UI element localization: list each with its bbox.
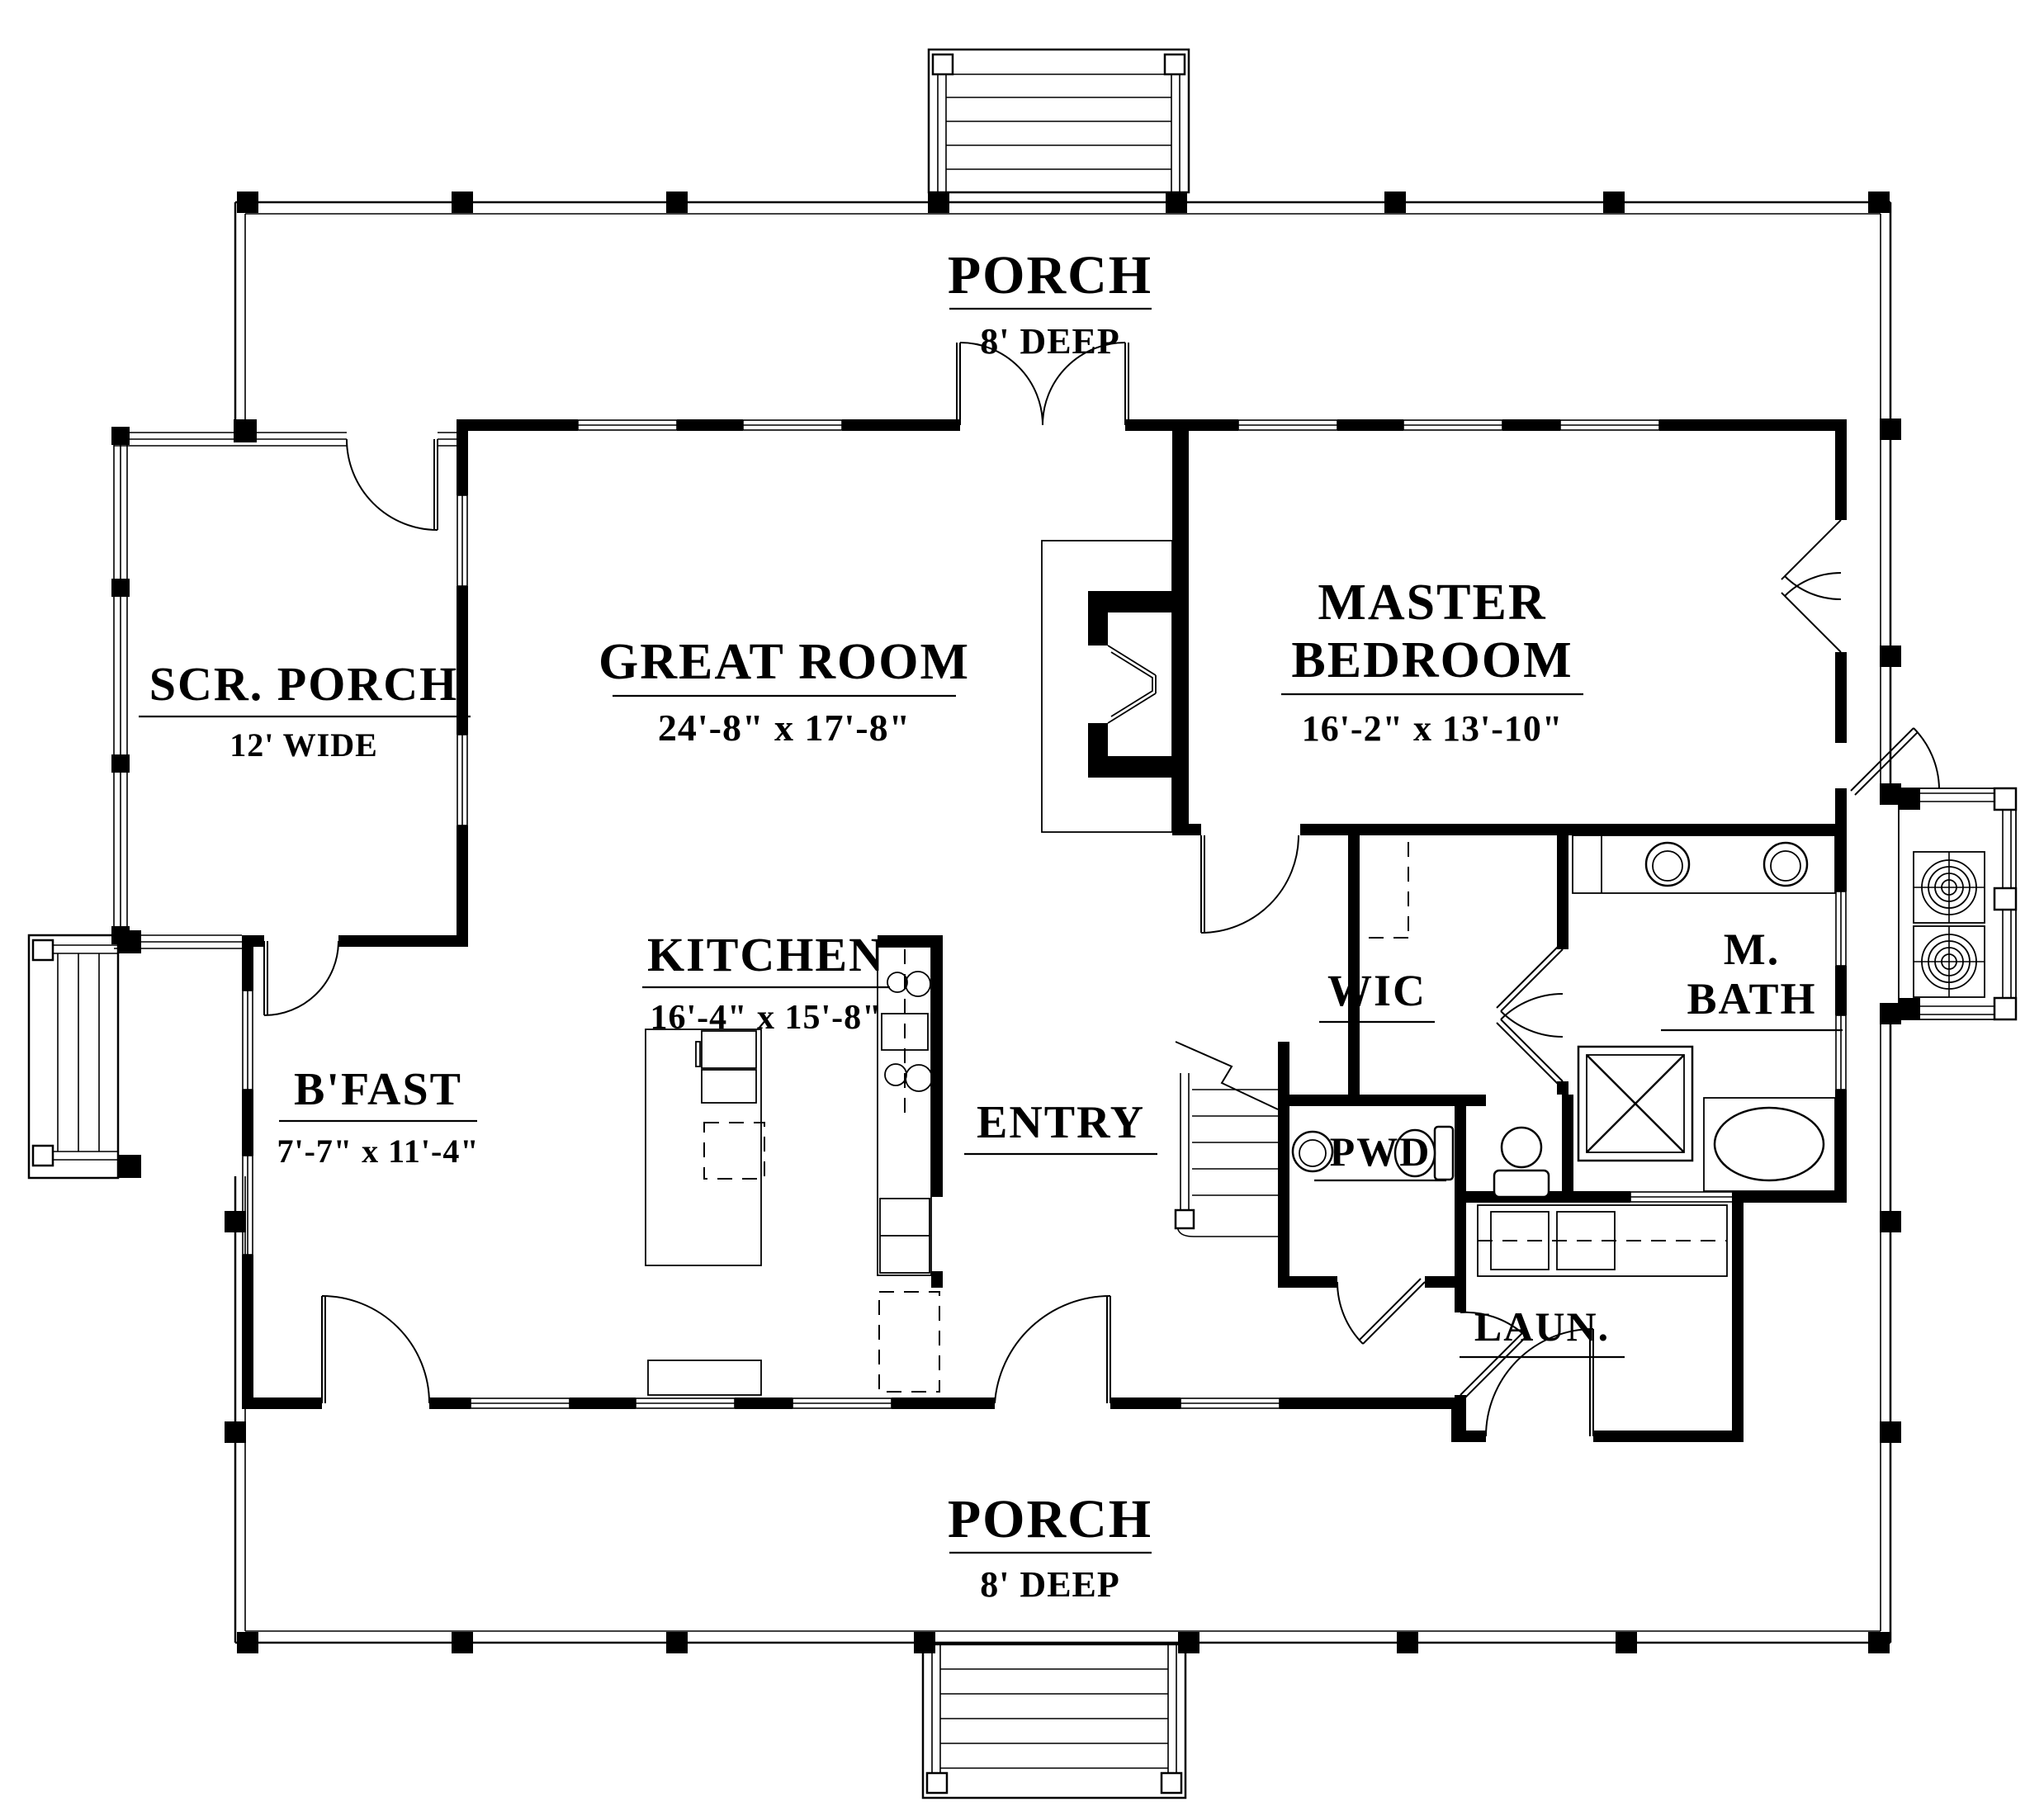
room-name: PORCH: [948, 1489, 1152, 1549]
label-screened-porch: SCR. PORCH 12' WIDE: [139, 657, 471, 764]
room-dim: 8' DEEP: [980, 321, 1120, 362]
room-dim: 12' WIDE: [229, 726, 378, 764]
room-name: KITCHEN: [647, 928, 885, 981]
room-name: B'FAST: [294, 1064, 462, 1115]
porch-edge: [235, 202, 1890, 1643]
bathtub: [1704, 1098, 1835, 1191]
kitchen-island: [646, 1029, 764, 1265]
door-kitchen-porch: [322, 1296, 429, 1403]
room-name: PWD: [1330, 1128, 1431, 1175]
fireplace: [1042, 541, 1172, 832]
label-breakfast: B'FAST 7'-7" x 11'-4": [277, 1064, 479, 1170]
room-dim: 16'-4" x 15'-8": [651, 999, 882, 1037]
interior-stairs: [1176, 1042, 1278, 1237]
room-name: LAUN.: [1474, 1303, 1610, 1350]
room-name: ENTRY: [977, 1097, 1145, 1148]
floor-plan-page: PORCH 8' DEEP SCR. PORCH 12' WIDE GREAT …: [0, 0, 2044, 1816]
label-porch-bottom: PORCH 8' DEEP: [948, 1489, 1152, 1605]
window: [243, 420, 1846, 1408]
vanity-double-sink: [1573, 835, 1835, 893]
washer-dryer: [1478, 1205, 1727, 1276]
hvac-unit: [1914, 926, 1985, 997]
left-stairs: [29, 930, 141, 1178]
label-powder: PWD: [1314, 1128, 1446, 1180]
door-breakfast-screenporch: [264, 941, 338, 1015]
room-name: MASTER: [1318, 575, 1546, 631]
room-name: M.: [1724, 925, 1780, 974]
powder-sink: [1293, 1132, 1332, 1171]
doors: [264, 343, 1939, 1436]
room-name: BEDROOM: [1291, 632, 1573, 688]
double-doors-wic: [1497, 946, 1563, 1085]
room-name: SCR. PORCH: [149, 657, 458, 711]
room-name: BATH: [1687, 974, 1816, 1024]
label-laundry: LAUN.: [1460, 1303, 1625, 1357]
label-master-bedroom: MASTER BEDROOM 16'-2" x 13'-10": [1281, 575, 1583, 749]
windows: [243, 420, 1846, 1408]
label-entry: ENTRY: [964, 1097, 1157, 1154]
shower: [1578, 1047, 1692, 1161]
floor-plan-drawing: PORCH 8' DEEP SCR. PORCH 12' WIDE GREAT …: [0, 0, 2044, 1816]
label-wic: WIC: [1319, 966, 1435, 1022]
room-dim: 8' DEEP: [980, 1564, 1120, 1605]
mechanical-pad: [1899, 788, 2016, 1019]
double-door-master-bedroom: [1781, 520, 1841, 652]
top-stairs: [929, 50, 1189, 192]
toilet-master: [1494, 1128, 1549, 1197]
label-master-bath: M. BATH: [1661, 925, 1843, 1030]
room-name: WIC: [1327, 966, 1427, 1015]
label-kitchen: KITCHEN 16'-4" x 15'-8": [642, 928, 890, 1037]
room-name: GREAT ROOM: [599, 634, 970, 690]
door-entry: [995, 1296, 1110, 1403]
door-screenporch-front: [347, 439, 438, 530]
room-dim: 24'-8" x 17'-8": [658, 707, 911, 749]
door-master-bedroom-hall: [1201, 835, 1299, 933]
label-great-room: GREAT ROOM 24'-8" x 17'-8": [599, 634, 970, 749]
door-powder: [1337, 1279, 1425, 1344]
closet-shelf-lines: [1364, 842, 1408, 938]
room-dim: 16'-2" x 13'-10": [1302, 708, 1564, 749]
exterior-walls: [242, 419, 1847, 1442]
room-dim: 7'-7" x 11'-4": [277, 1133, 479, 1170]
interior-walls: [878, 419, 1847, 1442]
bottom-stairs: [923, 1644, 1185, 1798]
hvac-unit: [1914, 852, 1985, 923]
room-name: PORCH: [948, 245, 1152, 305]
